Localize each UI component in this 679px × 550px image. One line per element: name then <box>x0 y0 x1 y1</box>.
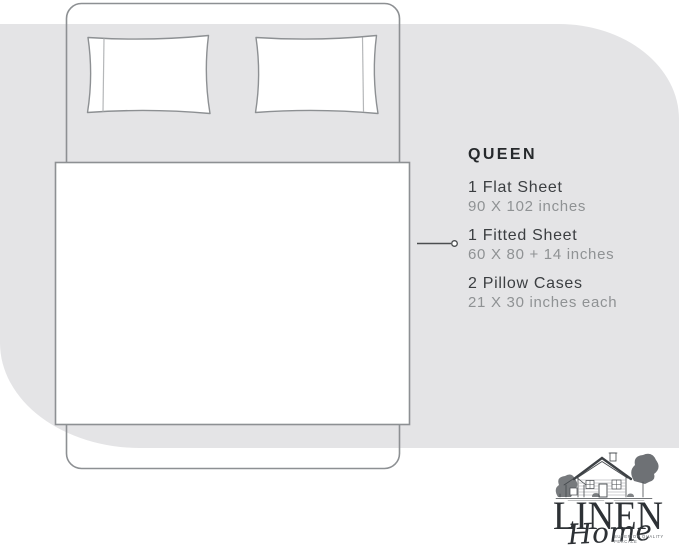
logo-tagline-line2: PERCALE <box>614 539 637 544</box>
spec-item-name: 2 Pillow Cases <box>468 274 668 293</box>
spec-panel: QUEEN 1 Flat Sheet 90 X 102 inches 1 Fit… <box>468 146 668 322</box>
brand-script-text: Home <box>566 514 653 549</box>
pillow-right <box>256 36 379 114</box>
spec-item-fitted-sheet: 1 Fitted Sheet 60 X 80 + 14 inches <box>468 226 668 264</box>
linen-home-logo: LINEN Home SUPERIOR QUALITY PERCALE <box>548 449 668 549</box>
spec-item-flat-sheet: 1 Flat Sheet 90 X 102 inches <box>468 178 668 216</box>
flat-sheet <box>56 163 410 425</box>
spec-item-pillow-cases: 2 Pillow Cases 21 X 30 inches each <box>468 274 668 312</box>
spec-item-name: 1 Fitted Sheet <box>468 226 668 245</box>
spec-item-dimensions: 60 X 80 + 14 inches <box>468 245 668 264</box>
pillow-left <box>88 36 211 114</box>
size-label: QUEEN <box>468 146 668 163</box>
bed-diagram <box>0 0 470 480</box>
pointer-dot <box>452 241 458 247</box>
spec-item-dimensions: 21 X 30 inches each <box>468 293 668 312</box>
infographic-canvas: QUEEN 1 Flat Sheet 90 X 102 inches 1 Fit… <box>0 0 679 550</box>
spec-item-name: 1 Flat Sheet <box>468 178 668 197</box>
spec-item-dimensions: 90 X 102 inches <box>468 197 668 216</box>
